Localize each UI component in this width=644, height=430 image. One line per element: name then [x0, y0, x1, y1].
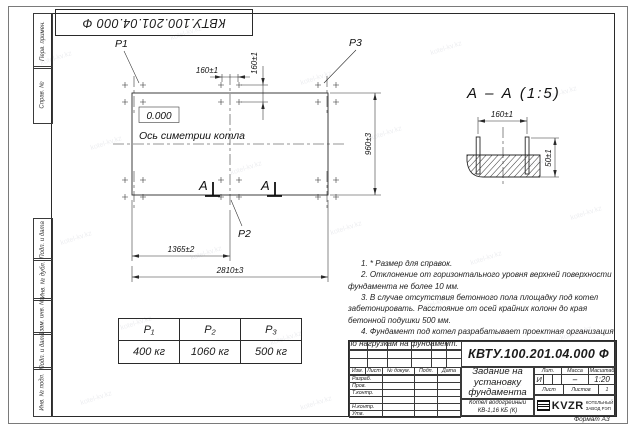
hatch-line	[445, 141, 487, 187]
section-dim-160: 160±1	[478, 110, 527, 134]
svg-text:160±1: 160±1	[250, 52, 259, 74]
section-mark-left: А	[198, 178, 220, 196]
company-subtitle: КОТЕЛЬНЫЙ ЗАВОД РЭП	[586, 400, 614, 410]
note-1: 1. * Размер для справок.	[348, 258, 616, 269]
svg-text:2810±3: 2810±3	[216, 266, 244, 275]
signature-row-cell	[382, 410, 415, 418]
dim-160-vert: 160±1	[241, 52, 268, 120]
hatch-line	[553, 141, 595, 187]
frame-cell-inv-podl: Инв. № подл.	[33, 367, 53, 417]
hatch-line	[475, 141, 517, 187]
frame-cell-label: Подп. и дата	[40, 221, 46, 259]
svg-text:P1: P1	[115, 38, 128, 50]
svg-text:50±1: 50±1	[544, 149, 553, 167]
hatch-line	[439, 141, 481, 187]
drawing-title: Задание на установку фундамента	[461, 367, 534, 399]
load-table: P₁ P₂ P₃ 400 кг 1060 кг 500 кг	[118, 318, 302, 364]
frame-cell-vzam-inv: Взам. инв. №	[33, 298, 53, 335]
section-view: А – А (1:5) 160±1 50±1	[445, 75, 630, 200]
frame-cell-label: Инв. № подл.	[40, 373, 46, 410]
level-mark: 0.000	[139, 107, 179, 123]
hatch-line	[451, 141, 493, 187]
frame-cell-label: Инв. № дубл.	[40, 261, 46, 298]
frame-cell-label: Взам. инв. №	[40, 298, 46, 335]
load-table-header-p1: P₁	[119, 319, 180, 341]
note-3: 3. В случае отсутствия бетонного пола пл…	[348, 292, 616, 326]
svg-text:1365±2: 1365±2	[168, 245, 195, 254]
section-title: А – А (1:5)	[466, 85, 561, 102]
drawing-sheet: kotel-kv.kzkotel-kv.kzkotel-kv.kzkotel-k…	[0, 0, 644, 430]
hatch-line	[487, 141, 529, 187]
product-line2: КВ-1,16 КБ (К)	[478, 408, 518, 414]
load-table-header-row: P₁ P₂ P₃	[119, 319, 301, 341]
load-table-value-p1: 400 кг	[119, 341, 180, 363]
section-anchor-bolts	[476, 137, 529, 174]
hatch-line	[463, 141, 505, 187]
title-block-doc-number: КВТУ.100.201.04.000 Ф	[461, 341, 616, 367]
load-point-p2: P2	[231, 200, 251, 240]
signature-row-cell	[437, 410, 461, 418]
sheet-label: Лист	[534, 384, 564, 395]
company-sub2: ЗАВОД РЭП	[586, 406, 611, 411]
frame-cell-label: Подп. и дата	[40, 332, 46, 370]
company-logo-icon	[537, 400, 550, 411]
section-dim-50: 50±1	[531, 138, 559, 177]
load-table-value-p2: 1060 кг	[180, 341, 241, 363]
frame-cell-label: Перв. примен.	[40, 21, 46, 61]
signature-row-label: Утв.	[349, 410, 383, 418]
svg-text:0.000: 0.000	[146, 111, 171, 122]
signature-row-cell	[414, 410, 438, 418]
svg-text:P2: P2	[238, 228, 251, 240]
load-table-header-p2: P₂	[180, 319, 241, 341]
notes-block: 1. * Размер для справок. 2. Отклонение о…	[348, 258, 616, 349]
svg-text:А: А	[198, 178, 208, 193]
hatch-line	[499, 141, 541, 187]
hatch-line	[457, 141, 499, 187]
hatch-line	[505, 141, 547, 187]
frame-cell-perv-primen: Перв. примен.	[33, 13, 53, 69]
svg-text:960±3: 960±3	[364, 132, 373, 155]
svg-text:160±1: 160±1	[491, 110, 513, 119]
company-logo-cell: KVZR КОТЕЛЬНЫЙ ЗАВОД РЭП	[534, 395, 616, 416]
svg-text:P3: P3	[349, 37, 362, 49]
dim-1365: 1365±2	[132, 200, 230, 261]
section-mark-right: А	[260, 178, 282, 196]
hatch-line	[481, 141, 523, 187]
sheets-value: 1	[598, 384, 616, 395]
title-block: КВТУ.100.201.04.000 Ф Изм. Лист № докум.…	[348, 340, 617, 417]
dim-160-top: 160±1	[196, 66, 250, 82]
product-name: Котел водогрейный КВ-1,16 КБ (К)	[461, 399, 534, 416]
product-line1: Котел водогрейный	[469, 400, 526, 406]
load-point-p1: P1	[115, 38, 139, 83]
company-name: KVZR	[552, 400, 584, 412]
format-label: Формат А3	[574, 416, 610, 423]
load-table-value-p3: 500 кг	[241, 341, 301, 363]
axis-of-symmetry-label: Ось симетрии котла	[139, 130, 245, 142]
doc-number-rotated: КВТУ.100.201.04.000 Ф	[82, 16, 226, 30]
hatch-line	[469, 141, 511, 187]
hatch-line	[535, 141, 577, 187]
frame-cell-sprav-no: Справ. №	[33, 66, 53, 124]
frame-cell-podp-data-2: Подп. и дата	[33, 332, 53, 370]
note-2: 2. Отклонение от горизонтального уровня …	[348, 269, 616, 292]
svg-text:160±1: 160±1	[196, 66, 218, 75]
load-table-header-p3: P₃	[241, 319, 301, 341]
svg-text:А: А	[260, 178, 270, 193]
hatch-line	[547, 141, 589, 187]
load-point-p3: P3	[324, 37, 362, 83]
sheets-label: Листов	[563, 384, 599, 395]
plan-centerlines	[113, 74, 347, 211]
frame-cell-podp-data-1: Подп. и дата	[33, 218, 53, 261]
load-table-value-row: 400 кг 1060 кг 500 кг	[119, 341, 301, 363]
frame-cell-label: Справ. №	[40, 81, 46, 108]
frame-cell-inv-dubl: Инв. № дубл.	[33, 258, 53, 301]
